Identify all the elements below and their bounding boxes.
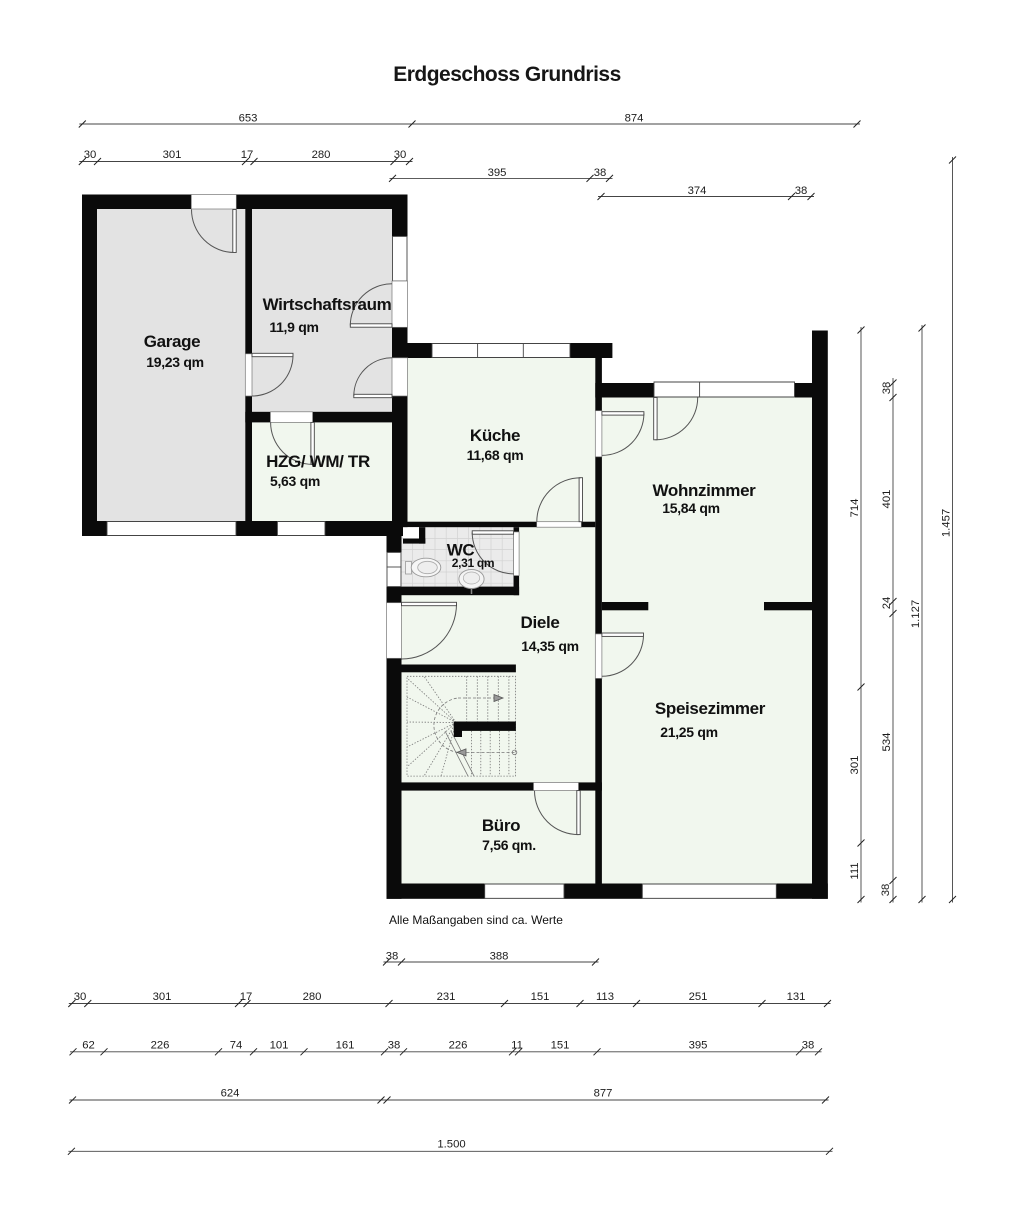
svg-text:301: 301 bbox=[163, 149, 182, 161]
svg-text:38: 38 bbox=[594, 167, 607, 179]
svg-text:624: 624 bbox=[221, 1087, 240, 1099]
svg-text:Garage: Garage bbox=[144, 332, 201, 351]
svg-text:251: 251 bbox=[689, 991, 708, 1003]
svg-text:38: 38 bbox=[388, 1039, 401, 1051]
svg-text:113: 113 bbox=[596, 991, 614, 1003]
svg-text:Speisezimmer: Speisezimmer bbox=[655, 699, 766, 718]
svg-text:30: 30 bbox=[84, 149, 97, 161]
svg-text:19,23 qm: 19,23 qm bbox=[146, 354, 204, 370]
svg-text:38: 38 bbox=[802, 1039, 815, 1051]
svg-text:38: 38 bbox=[795, 185, 808, 197]
svg-text:714: 714 bbox=[849, 499, 861, 518]
svg-text:Diele: Diele bbox=[521, 613, 560, 632]
svg-text:653: 653 bbox=[239, 113, 258, 125]
svg-text:Erdgeschoss Grundriss: Erdgeschoss Grundriss bbox=[393, 63, 621, 86]
svg-text:877: 877 bbox=[594, 1087, 613, 1099]
svg-text:111: 111 bbox=[849, 862, 861, 879]
svg-text:5,63 qm: 5,63 qm bbox=[270, 473, 320, 489]
svg-text:38: 38 bbox=[880, 884, 892, 897]
svg-text:1.127: 1.127 bbox=[910, 600, 922, 628]
svg-text:38: 38 bbox=[881, 382, 893, 395]
svg-text:7,56 qm.: 7,56 qm. bbox=[482, 837, 536, 853]
svg-text:Alle Maßangaben sind ca. Werte: Alle Maßangaben sind ca. Werte bbox=[389, 913, 563, 927]
svg-text:280: 280 bbox=[303, 991, 322, 1003]
svg-text:15,84 qm: 15,84 qm bbox=[662, 500, 720, 516]
svg-text:874: 874 bbox=[625, 113, 644, 125]
svg-text:301: 301 bbox=[153, 991, 172, 1003]
svg-text:161: 161 bbox=[336, 1039, 355, 1051]
svg-text:30: 30 bbox=[74, 991, 87, 1003]
svg-text:30: 30 bbox=[394, 149, 407, 161]
svg-text:HZG/ WM/ TR: HZG/ WM/ TR bbox=[266, 452, 370, 471]
svg-text:Wirtschaftsraum: Wirtschaftsraum bbox=[263, 295, 392, 314]
svg-text:1.457: 1.457 bbox=[941, 509, 953, 537]
svg-text:401: 401 bbox=[881, 490, 893, 509]
svg-text:1.500: 1.500 bbox=[437, 1139, 465, 1151]
svg-text:Büro: Büro bbox=[482, 816, 520, 835]
svg-text:24: 24 bbox=[881, 597, 893, 610]
svg-text:374: 374 bbox=[688, 185, 707, 197]
svg-text:388: 388 bbox=[490, 951, 509, 963]
svg-text:11,68 qm: 11,68 qm bbox=[467, 447, 524, 463]
svg-text:226: 226 bbox=[151, 1039, 170, 1051]
svg-text:62: 62 bbox=[82, 1039, 95, 1051]
svg-text:38: 38 bbox=[386, 951, 399, 963]
svg-text:21,25 qm: 21,25 qm bbox=[660, 724, 718, 740]
svg-text:11: 11 bbox=[511, 1039, 523, 1051]
svg-text:151: 151 bbox=[551, 1039, 570, 1051]
svg-text:231: 231 bbox=[437, 991, 456, 1003]
svg-text:Küche: Küche bbox=[470, 426, 520, 445]
svg-text:11,9 qm: 11,9 qm bbox=[269, 319, 318, 335]
svg-text:Wohnzimmer: Wohnzimmer bbox=[653, 481, 757, 500]
svg-text:395: 395 bbox=[689, 1039, 708, 1051]
svg-text:101: 101 bbox=[270, 1039, 289, 1051]
svg-text:131: 131 bbox=[787, 991, 806, 1003]
svg-text:74: 74 bbox=[230, 1039, 243, 1051]
svg-text:395: 395 bbox=[488, 167, 507, 179]
svg-text:280: 280 bbox=[312, 149, 331, 161]
svg-text:17: 17 bbox=[241, 149, 254, 161]
svg-text:534: 534 bbox=[881, 733, 893, 752]
svg-text:14,35 qm: 14,35 qm bbox=[521, 638, 579, 654]
svg-text:17: 17 bbox=[240, 991, 253, 1003]
svg-text:226: 226 bbox=[449, 1039, 468, 1051]
svg-text:151: 151 bbox=[531, 991, 550, 1003]
svg-text:301: 301 bbox=[849, 756, 861, 775]
svg-text:2,31 qm: 2,31 qm bbox=[452, 556, 495, 570]
